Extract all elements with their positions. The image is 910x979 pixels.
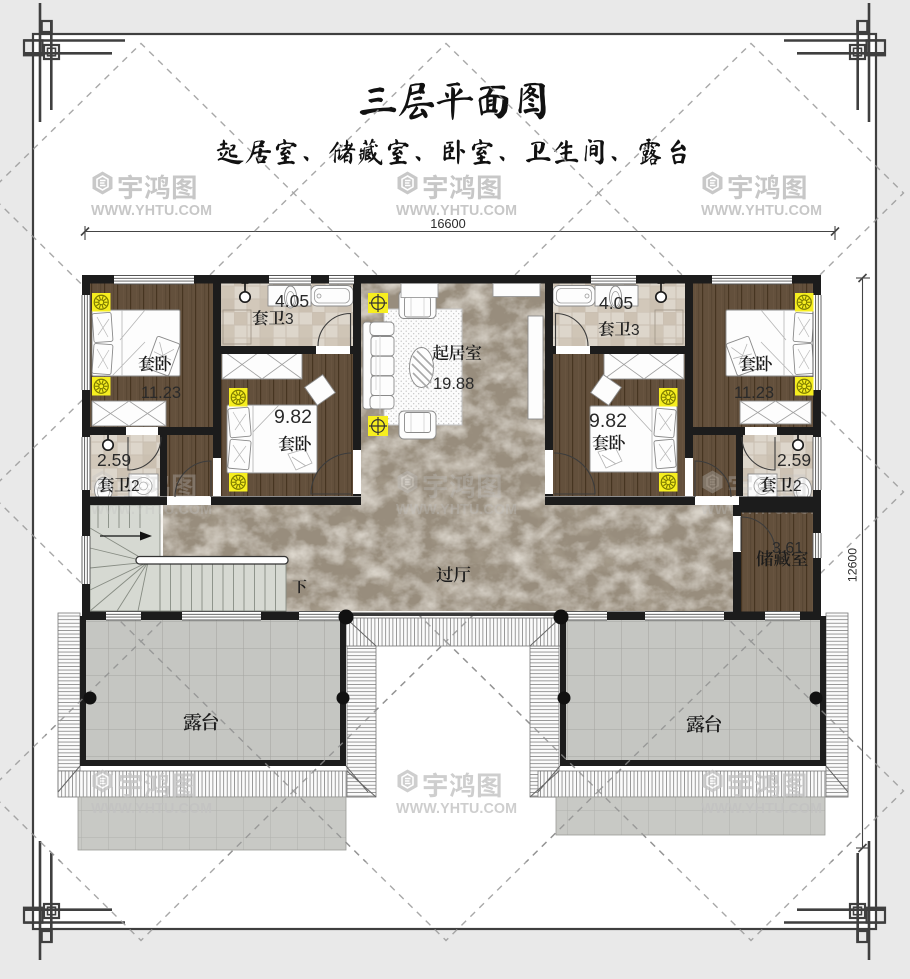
svg-text:11.23: 11.23 [734, 384, 774, 402]
svg-text:4.05: 4.05 [275, 291, 309, 311]
svg-text:WWW.YHTU.COM: WWW.YHTU.COM [396, 502, 517, 518]
svg-text:9.82: 9.82 [274, 406, 312, 428]
svg-text:3: 3 [631, 322, 640, 339]
svg-text:19.88: 19.88 [433, 375, 474, 393]
svg-text:WWW.YHTU.COM: WWW.YHTU.COM [701, 801, 822, 817]
svg-text:3: 3 [285, 311, 294, 328]
svg-text:4.05: 4.05 [599, 293, 633, 313]
svg-text:2.59: 2.59 [777, 450, 811, 470]
svg-text:9.82: 9.82 [589, 410, 627, 432]
svg-text:WWW.YHTU.COM: WWW.YHTU.COM [91, 801, 212, 817]
svg-text:11.23: 11.23 [141, 384, 181, 402]
svg-text:2.59: 2.59 [97, 450, 131, 470]
svg-text:WWW.YHTU.COM: WWW.YHTU.COM [396, 203, 517, 219]
svg-text:WWW.YHTU.COM: WWW.YHTU.COM [91, 203, 212, 219]
svg-text:WWW.YHTU.COM: WWW.YHTU.COM [396, 801, 517, 817]
svg-text:2: 2 [131, 478, 140, 495]
svg-text:2: 2 [793, 478, 802, 495]
svg-text:12600: 12600 [846, 548, 860, 582]
svg-text:WWW.YHTU.COM: WWW.YHTU.COM [701, 203, 822, 219]
svg-text:3.61: 3.61 [772, 540, 803, 557]
